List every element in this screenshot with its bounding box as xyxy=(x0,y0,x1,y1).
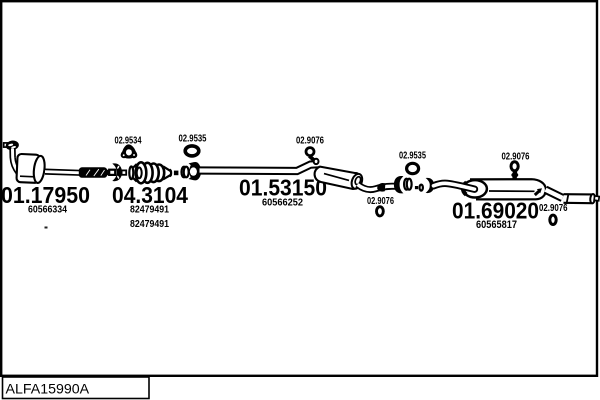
svg-text:02.9076: 02.9076 xyxy=(367,196,394,207)
svg-text:02.9535: 02.9535 xyxy=(179,133,207,144)
svg-text:02.9076: 02.9076 xyxy=(539,203,568,214)
svg-text:60566252: 60566252 xyxy=(262,197,303,208)
svg-text:ALFA15990A: ALFA15990A xyxy=(6,381,90,397)
svg-text:60565817: 60565817 xyxy=(476,219,517,231)
svg-text:82479491: 82479491 xyxy=(130,219,169,230)
svg-text:60566334: 60566334 xyxy=(28,205,67,216)
svg-text:02.9076: 02.9076 xyxy=(296,136,324,147)
svg-text:82479491: 82479491 xyxy=(130,205,169,216)
svg-text:02.9535: 02.9535 xyxy=(399,151,426,162)
